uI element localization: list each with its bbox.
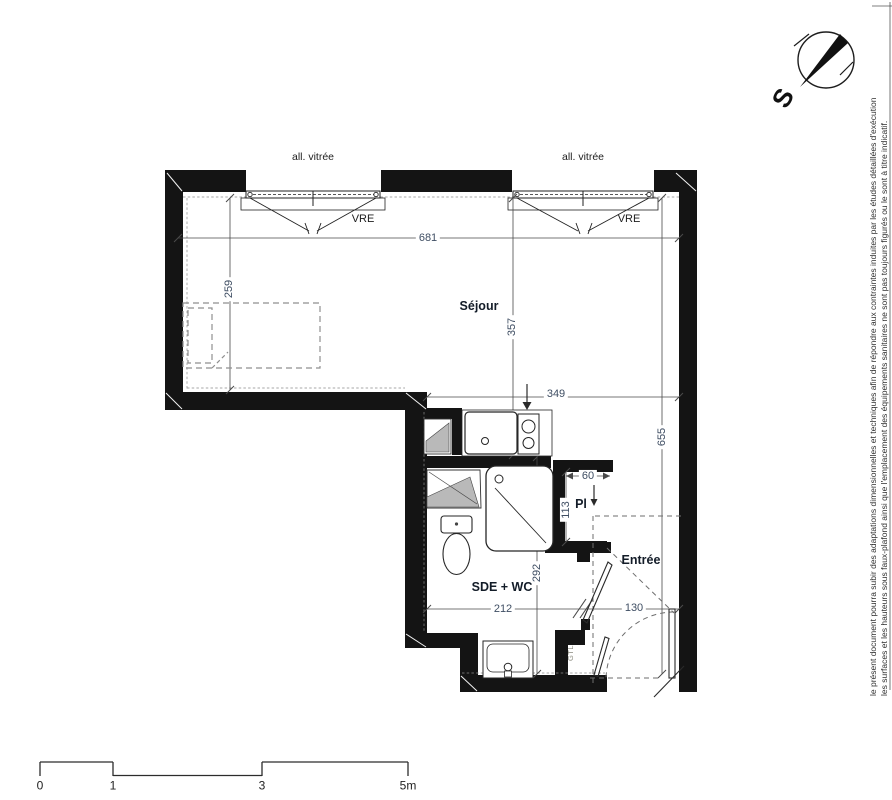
dim-357: 357 [506, 315, 518, 339]
room-label-closet: Pl [575, 498, 587, 512]
disclaimer-line-1: le présent document pourra subir des ada… [868, 6, 879, 696]
north-needle [800, 34, 848, 87]
toilet [441, 516, 472, 575]
entrance-door-leaf [669, 609, 675, 678]
dim-113: 113 [560, 498, 572, 522]
disclaimer-line-2: les surfaces et les hauteurs sous faux-p… [879, 6, 890, 696]
vanity-sink [483, 641, 533, 678]
shutter-label-1: VRE [352, 213, 375, 225]
window-label-1: all. vitrée [292, 152, 334, 164]
dim-292: 292 [531, 561, 543, 585]
room-label-entry: Entrée [622, 554, 661, 568]
compass-icon [794, 32, 854, 88]
dim-681: 681 [416, 232, 440, 244]
dim-259: 259 [223, 277, 235, 301]
gtl-label: GTL [567, 645, 575, 661]
bed [183, 303, 320, 368]
dim-655: 655 [656, 425, 668, 449]
scale-tick-5m: 5m [400, 779, 417, 792]
shower [486, 466, 553, 551]
room-label-sejour: Séjour [460, 300, 499, 314]
dim-349: 349 [544, 388, 568, 400]
dim-60: 60 [579, 470, 597, 482]
floorplan-drawing [0, 0, 892, 800]
scale-tick-1: 1 [110, 779, 117, 792]
scale-tick-0: 0 [37, 779, 44, 792]
window-label-2: all. vitrée [562, 152, 604, 164]
scale-tick-3: 3 [259, 779, 266, 792]
technical-shaft-bathroom [427, 470, 481, 508]
kitchen-counter [462, 410, 552, 456]
sde-door-leaf [583, 562, 612, 623]
room-label-sde-wc: SDE + WC [472, 581, 533, 595]
kitchen-sink [465, 412, 517, 454]
scale-bar [40, 762, 408, 776]
shutter-label-2: VRE [618, 213, 641, 225]
door-leaves [583, 562, 684, 697]
dim-130: 130 [622, 602, 646, 614]
gtl-door-leaf [594, 637, 609, 677]
technical-shaft-kitchen [424, 419, 451, 454]
floorplan-page: all. vitrée all. vitrée VRE VRE 681 259 … [0, 0, 892, 800]
dim-212: 212 [491, 603, 515, 615]
